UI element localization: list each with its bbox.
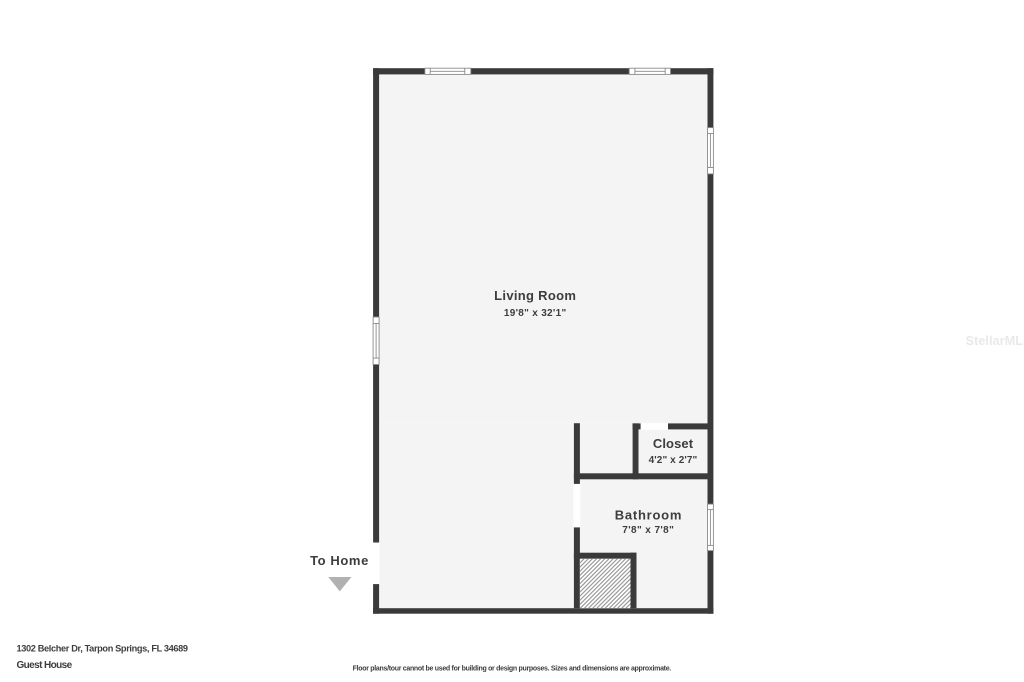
svg-text:7'8" x 7'8": 7'8" x 7'8" xyxy=(622,525,674,536)
svg-text:To Home: To Home xyxy=(310,553,369,568)
svg-text:Bathroom: Bathroom xyxy=(615,508,682,523)
svg-text:Floor plans/tour cannot be use: Floor plans/tour cannot be used for buil… xyxy=(353,665,672,672)
svg-text:1302 Belcher Dr, Tarpon Spring: 1302 Belcher Dr, Tarpon Springs, FL 3468… xyxy=(17,644,188,654)
svg-text:19'8" x 32'1": 19'8" x 32'1" xyxy=(504,308,567,319)
svg-text:Living Room: Living Room xyxy=(494,288,576,303)
svg-text:Guest House: Guest House xyxy=(17,660,73,671)
svg-text:StellarMLS: StellarMLS xyxy=(966,333,1024,348)
svg-text:Closet: Closet xyxy=(653,436,694,451)
svg-text:4'2" x 2'7": 4'2" x 2'7" xyxy=(649,455,698,466)
